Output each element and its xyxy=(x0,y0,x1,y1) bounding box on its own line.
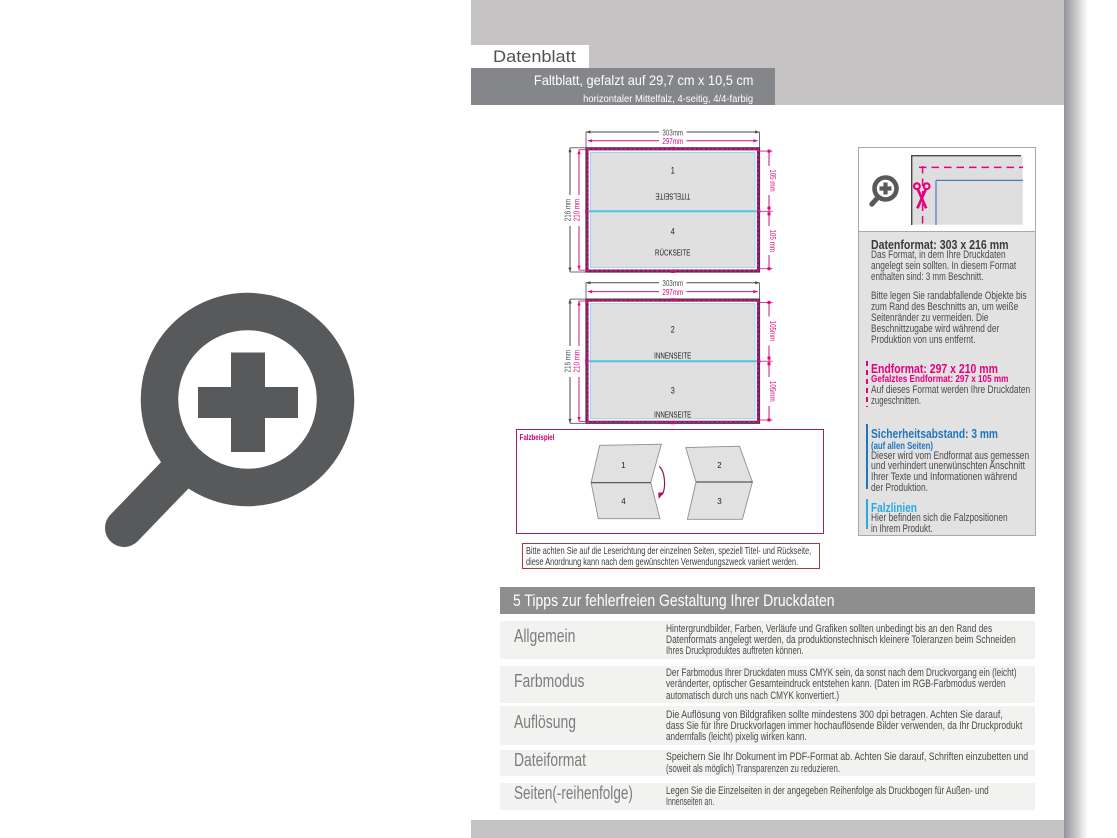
svg-text:4: 4 xyxy=(621,497,626,506)
svg-text:2: 2 xyxy=(671,325,675,335)
svg-text:1: 1 xyxy=(671,166,675,176)
svg-text:INNENSEITE: INNENSEITE xyxy=(654,351,691,361)
svg-text:Falzbeispiel: Falzbeispiel xyxy=(519,432,554,442)
svg-text:216 mm: 216 mm xyxy=(564,350,573,373)
svg-text:297mm: 297mm xyxy=(662,288,683,297)
svg-text:105mm: 105mm xyxy=(768,381,777,402)
svg-text:TITELSEITE: TITELSEITE xyxy=(656,191,691,201)
svg-text:2: 2 xyxy=(717,461,722,470)
svg-text:297mm: 297mm xyxy=(662,138,683,147)
svg-text:1: 1 xyxy=(621,461,626,470)
svg-text:216 mm: 216 mm xyxy=(564,199,573,222)
svg-text:105 mm: 105 mm xyxy=(768,169,777,192)
svg-text:3: 3 xyxy=(671,386,675,396)
svg-text:4: 4 xyxy=(671,227,675,237)
svg-text:105mm: 105mm xyxy=(768,321,777,342)
svg-text:3: 3 xyxy=(717,497,722,506)
svg-text:INNENSEITE: INNENSEITE xyxy=(654,409,691,419)
svg-text:210 mm: 210 mm xyxy=(573,199,582,222)
svg-text:105 mm: 105 mm xyxy=(768,229,777,252)
svg-text:210 mm: 210 mm xyxy=(573,350,582,373)
svg-text:RÜCKSEITE: RÜCKSEITE xyxy=(655,247,690,257)
